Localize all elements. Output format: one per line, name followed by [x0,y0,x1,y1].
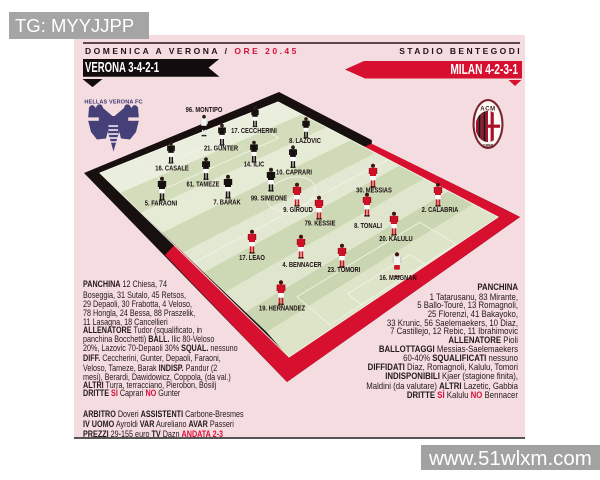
svg-text:14. ILIC: 14. ILIC [244,161,265,169]
svg-text:HELLAS VERONA FC: HELLAS VERONA FC [84,99,142,105]
svg-text:61. TAMEZE: 61. TAMEZE [186,181,219,189]
svg-text:99. SIMEONE: 99. SIMEONE [251,195,287,203]
svg-text:10. CAPRARI: 10. CAPRARI [276,169,312,177]
svg-text:1899: 1899 [483,143,494,149]
svg-text:9. GIROUD: 9. GIROUD [283,207,313,215]
svg-text:21. GUNTER: 21. GUNTER [204,145,238,153]
svg-text:17. CECCHERINI: 17. CECCHERINI [231,128,277,136]
svg-text:5. FARAONI: 5. FARAONI [145,200,178,208]
svg-text:19. HERNANDEZ: 19. HERNANDEZ [259,305,305,313]
svg-text:30. MESSIAS: 30. MESSIAS [356,187,392,195]
svg-text:23. TOMORI: 23. TOMORI [328,267,361,275]
svg-text:17. LEAO: 17. LEAO [239,255,265,263]
svg-text:4. BENNACER: 4. BENNACER [282,262,322,270]
svg-text:2. CALABRIA: 2. CALABRIA [422,207,459,215]
svg-text:16. MAIGNAN: 16. MAIGNAN [379,275,417,283]
svg-text:16. CASALE: 16. CASALE [155,165,188,173]
svg-text:7. BARAK: 7. BARAK [213,199,241,207]
svg-text:79. KESSIE: 79. KESSIE [305,220,336,228]
svg-text:8. TONALI: 8. TONALI [354,223,382,231]
svg-text:8. LAZOVIC: 8. LAZOVIC [289,138,321,146]
svg-text:20. KALULU: 20. KALULU [379,236,413,244]
svg-text:96. MONTIPO: 96. MONTIPO [186,107,223,115]
